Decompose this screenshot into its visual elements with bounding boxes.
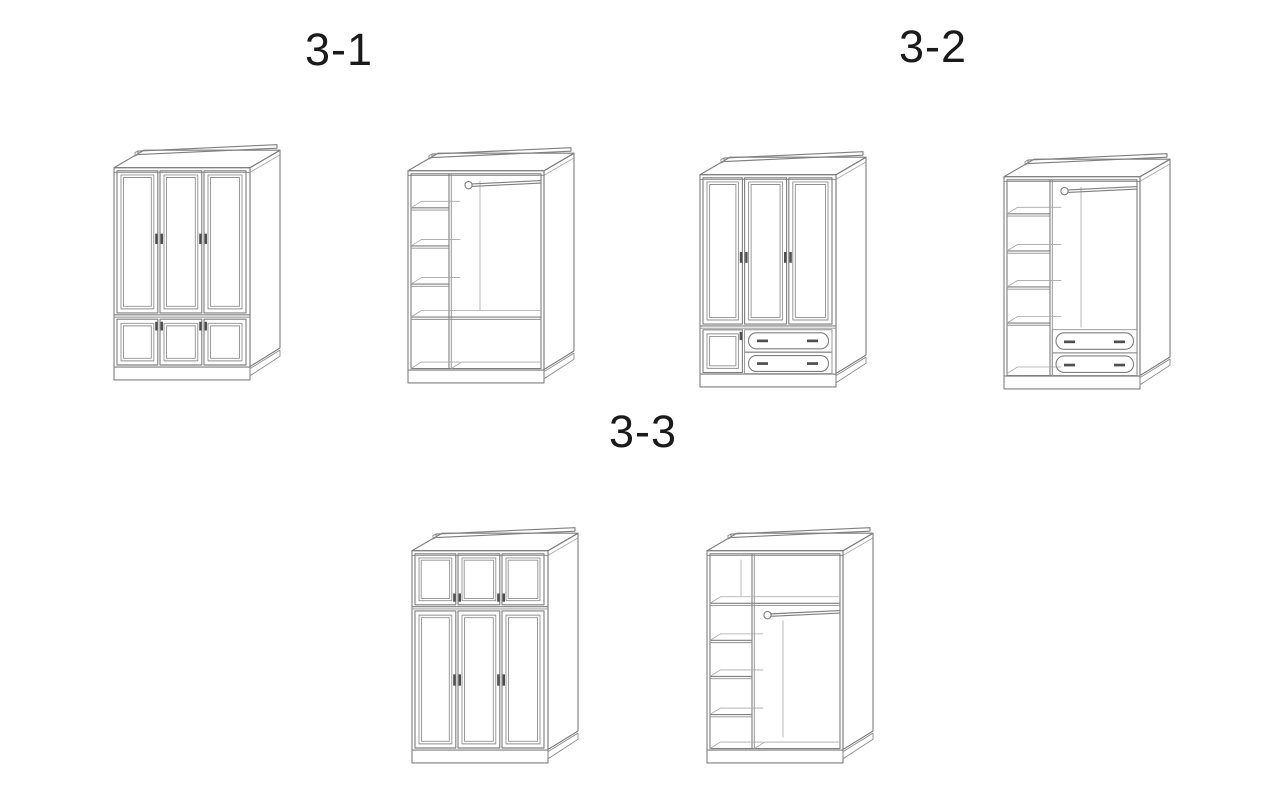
door-handles: [155, 234, 207, 244]
variant-label-3-1: 3-1: [305, 27, 373, 72]
full-width-shelf: [710, 597, 841, 606]
tall-doors: [415, 611, 544, 748]
floor-depth-lines: [411, 362, 542, 368]
carcass: [412, 528, 578, 763]
hanging-rail: [1061, 187, 1137, 195]
carcass: [707, 528, 873, 763]
diagram-sheet: 3-1 3-2 3-3: [0, 0, 1280, 800]
tall-doors: [117, 171, 246, 313]
opening: [411, 174, 541, 369]
door-handles: [740, 252, 792, 263]
variant-label-3-2: 3-2: [899, 24, 967, 69]
drawers: [745, 330, 832, 374]
wardrobe-3-2-interior: [1001, 152, 1173, 391]
top-doors: [415, 554, 544, 605]
small-door: [703, 330, 742, 373]
wardrobe-3-1-closed: [111, 143, 283, 382]
wardrobe-3-3-interior-drawing: [704, 526, 876, 765]
door-handles: [453, 674, 505, 685]
hanging-rail: [465, 181, 541, 189]
hanging-rail: [764, 611, 840, 619]
wardrobe-3-2-closed-drawing: [697, 150, 869, 389]
wardrobe-3-3-closed-drawing: [409, 526, 581, 765]
opening: [1007, 180, 1137, 376]
wardrobe-3-1-closed-drawing: [111, 143, 283, 382]
opening: [710, 554, 840, 749]
drawers: [1052, 330, 1137, 376]
wardrobe-3-2-closed: [697, 150, 869, 389]
wardrobe-3-1-interior: [405, 146, 577, 385]
full-width-shelf: [411, 311, 542, 320]
shelf-column: [411, 174, 460, 369]
wardrobe-3-3-closed: [409, 526, 581, 765]
lower-doors: [117, 319, 246, 365]
floor-depth-lines: [710, 742, 841, 748]
carcass: [114, 145, 280, 380]
wardrobe-3-2-interior-drawing: [1001, 152, 1173, 391]
variant-label-3-3: 3-3: [609, 409, 677, 454]
shelf-column: [1007, 180, 1061, 376]
wardrobe-3-3-interior: [704, 526, 876, 765]
wardrobe-3-1-interior-drawing: [405, 146, 577, 385]
tall-doors: [703, 178, 832, 324]
shelf-column: [710, 634, 763, 717]
